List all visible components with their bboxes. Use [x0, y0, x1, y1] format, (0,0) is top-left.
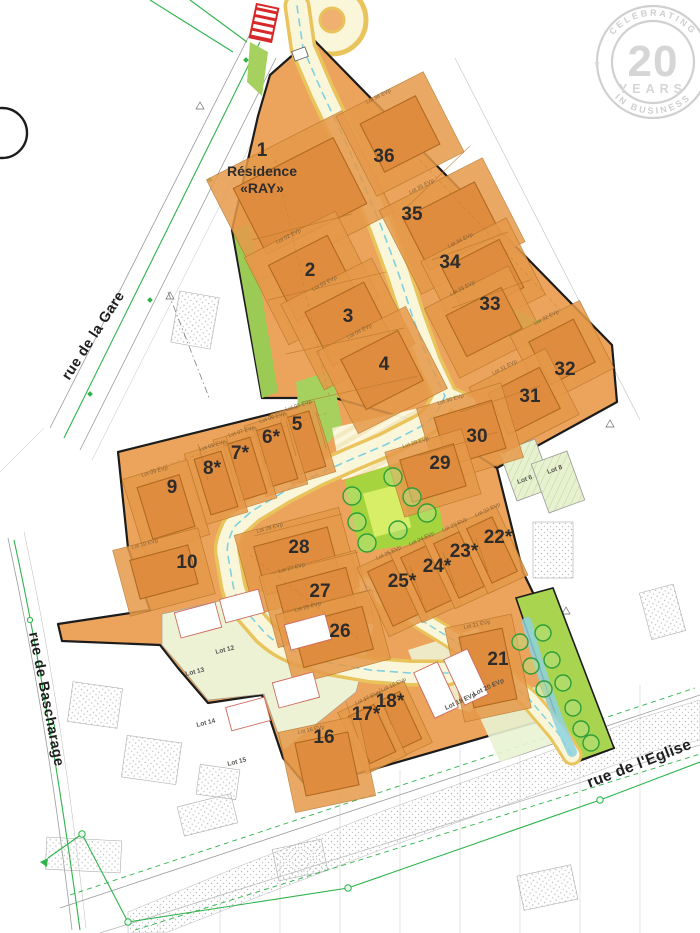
planned-house-outline — [226, 697, 271, 731]
tree-icon — [418, 504, 436, 522]
tree-icon — [565, 700, 581, 716]
tree-icon — [583, 735, 599, 751]
entrance-marker-icon — [250, 4, 279, 42]
lot-9-number: 9 — [167, 477, 178, 498]
small-lot-label-2: Lot 14 — [196, 717, 217, 729]
lot-23-number: 23* — [450, 541, 479, 562]
lot-6-number: 6* — [262, 427, 281, 448]
lot-36-number: 36 — [373, 146, 394, 167]
lot-28-number: 28 — [288, 537, 309, 558]
watermark-arc-top: CELEBRATING — [607, 8, 699, 37]
lot-22-number: 22* — [484, 527, 513, 548]
lot-24-number: 24* — [423, 556, 452, 577]
tree-icon — [573, 721, 589, 737]
lot-7-number: 7* — [231, 443, 250, 464]
residence-name-line2: «RAY» — [240, 180, 284, 196]
lot-26-number: 26 — [329, 621, 350, 642]
lot-35-number: 35 — [401, 204, 423, 225]
watermark-star-left-icon: ★ — [593, 59, 600, 68]
lot-32-number: 32 — [554, 359, 575, 380]
lot-8-number: 8* — [203, 458, 222, 479]
tree-icon — [555, 675, 571, 691]
street-rue-de-bascharage: rue de Bascharage — [25, 631, 67, 768]
lot-29-number: 29 — [429, 453, 450, 474]
lot-21-number: 21 — [487, 649, 509, 670]
watermark-badge: CELEBRATING 20 YEARS IN BUSINESS ★ ★ — [593, 6, 700, 118]
tree-icon — [535, 625, 551, 641]
street-rue-de-la-gare: rue de la Gare — [59, 289, 128, 384]
tree-icon — [343, 487, 361, 505]
lot-5-number: 5 — [292, 414, 303, 435]
lot-30-number: 30 — [466, 426, 487, 447]
watermark-years: YEARS — [619, 82, 687, 96]
tree-icon — [536, 681, 552, 697]
tree-icon — [348, 513, 366, 531]
small-lot-label-3: Lot 15 — [227, 756, 248, 768]
site-plan-canvas: 2Lot 02 EVp3Lot 03 EVp4Lot 04 EVp36Lot 3… — [0, 0, 700, 933]
tree-icon — [403, 488, 421, 506]
tree-icon — [544, 652, 560, 668]
site-plan-svg: 2Lot 02 EVp3Lot 03 EVp4Lot 04 EVp36Lot 3… — [0, 0, 700, 933]
tree-icon — [389, 521, 407, 539]
lot-34-number: 34 — [439, 252, 461, 273]
tree-icon — [384, 468, 402, 486]
boundary-circle-symbol — [0, 108, 27, 158]
lot-10-number: 10 — [176, 552, 197, 573]
lot-4-number: 4 — [379, 354, 390, 375]
tree-icon — [523, 658, 539, 674]
lot-25-number: 25* — [388, 571, 417, 592]
tree-icon — [512, 634, 528, 650]
lot-1-number: 1 — [257, 140, 268, 161]
tree-icon — [358, 534, 376, 552]
residence-name-line1: Résidence — [227, 163, 297, 179]
lot-2-number: 2 — [305, 260, 316, 281]
lot-3-number: 3 — [343, 306, 354, 327]
lot-33-number: 33 — [479, 294, 500, 315]
green-entry — [247, 42, 268, 96]
lot-31-number: 31 — [519, 386, 541, 407]
watermark-number: 20 — [628, 37, 679, 86]
lot-27-number: 27 — [309, 581, 330, 602]
